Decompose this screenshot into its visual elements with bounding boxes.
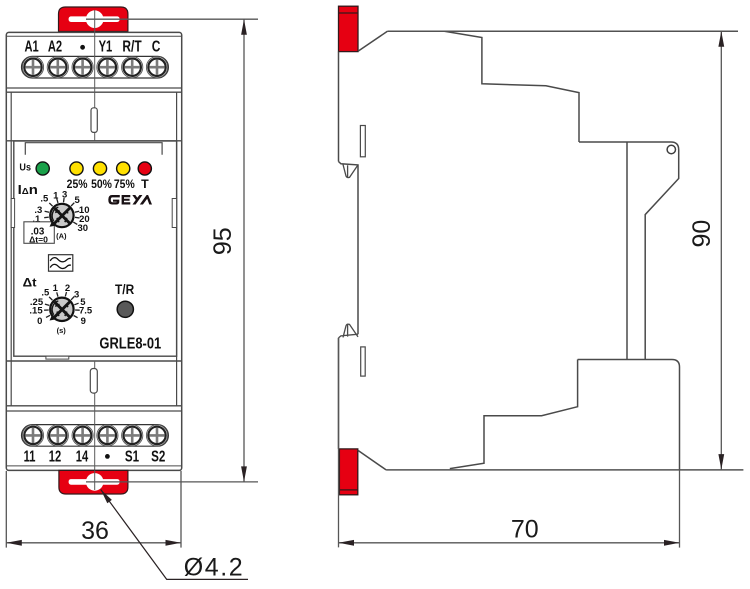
svg-text:A2: A2	[48, 38, 62, 55]
svg-text:A1: A1	[24, 38, 39, 55]
svg-text:0: 0	[37, 316, 42, 327]
svg-text:75%: 75%	[114, 178, 135, 191]
svg-text:12: 12	[49, 448, 61, 465]
svg-text:11: 11	[24, 448, 36, 465]
svg-text:T: T	[141, 177, 149, 191]
svg-text:14: 14	[76, 448, 89, 465]
svg-text:S2: S2	[151, 448, 166, 465]
svg-text:70: 70	[511, 516, 539, 544]
svg-text:Δt=0: Δt=0	[29, 235, 48, 245]
svg-text:Ø4.2: Ø4.2	[184, 554, 245, 582]
svg-text:(s): (s)	[57, 326, 67, 335]
svg-text:Δt: Δt	[23, 276, 37, 290]
svg-text:25%: 25%	[67, 178, 88, 191]
svg-text:S1: S1	[125, 448, 140, 465]
svg-text:1: 1	[53, 191, 59, 202]
svg-text:Us: Us	[19, 162, 31, 174]
svg-text:2: 2	[65, 283, 70, 294]
svg-text:Y1: Y1	[99, 38, 113, 55]
svg-text:90: 90	[688, 220, 716, 248]
svg-text:R/T: R/T	[122, 38, 142, 55]
svg-text:T/R: T/R	[115, 281, 135, 297]
svg-text:9: 9	[81, 316, 86, 327]
svg-text:3: 3	[62, 189, 67, 200]
svg-text:36: 36	[81, 517, 109, 545]
svg-text:30: 30	[78, 223, 89, 234]
svg-text:3: 3	[74, 289, 79, 300]
svg-text:C: C	[152, 38, 161, 55]
svg-text:.5: .5	[40, 194, 49, 205]
svg-text:95: 95	[209, 227, 237, 255]
svg-text:(A): (A)	[56, 232, 67, 241]
svg-text:50%: 50%	[91, 178, 112, 191]
svg-text:GRLE8-01: GRLE8-01	[99, 335, 161, 352]
svg-text:1: 1	[53, 283, 59, 294]
